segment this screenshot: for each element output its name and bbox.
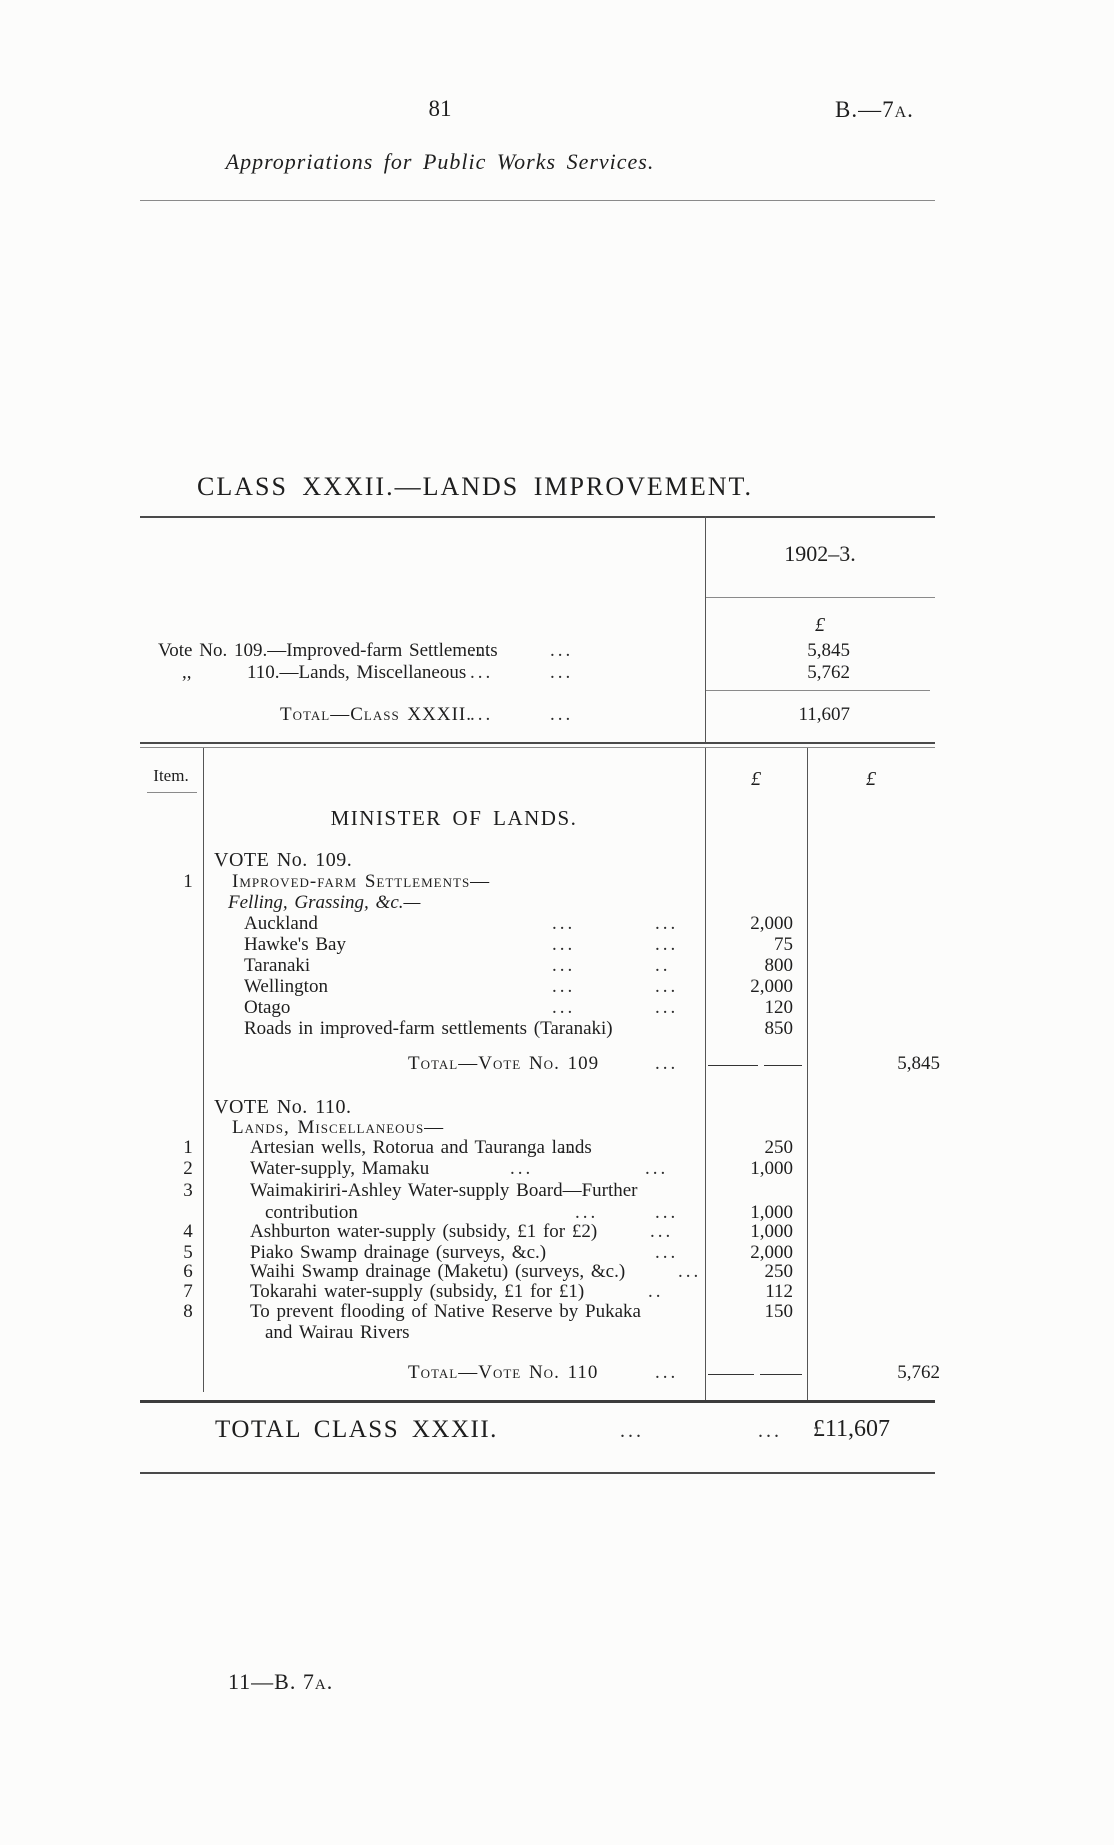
leader-dots: ...: [650, 1221, 673, 1243]
vote-total-row: Total—Vote No. 110 ... 5,762: [0, 1362, 1114, 1384]
group-heading-row: Lands, Miscellaneous—: [0, 1117, 1114, 1139]
total-dash-rule: [708, 1065, 758, 1066]
summary-amount: 5,845: [740, 640, 850, 662]
leader-dots: ...: [552, 934, 575, 956]
year-rule: [706, 597, 935, 598]
vote-total-amount: 5,845: [845, 1053, 940, 1075]
table-row: 3 Waimakiriri-Ashley Water-supply Board—…: [0, 1180, 1114, 1202]
group-heading: Lands, Miscellaneous—: [232, 1117, 444, 1139]
table-row: 2 Water-supply, Mamaku ... ... 1,000: [0, 1158, 1114, 1180]
leader-dots: ...: [655, 1053, 678, 1075]
item-amount: 2,000: [690, 976, 793, 998]
pound-sign-col1: £: [705, 768, 807, 791]
vote-heading: VOTE No. 109.: [214, 849, 352, 872]
pound-sign-col2: £: [807, 768, 935, 791]
item-amount: 2,000: [690, 913, 793, 935]
leader-dots: ...: [552, 913, 575, 935]
leader-dots: ..: [655, 955, 671, 977]
vote-heading: VOTE No. 110.: [214, 1096, 352, 1119]
summary-sum-rule: [706, 690, 930, 691]
leader-dots: ...: [552, 997, 575, 1019]
table-row: 4 Ashburton water-supply (subsidy, £1 fo…: [0, 1221, 1114, 1243]
total-dash-rule: [760, 1374, 802, 1375]
item-number: 3: [170, 1180, 206, 1202]
leader-dots: ...: [620, 1420, 644, 1443]
grand-total-label: TOTAL CLASS XXXII.: [215, 1416, 498, 1445]
grand-total-amount: £11,607: [760, 1416, 890, 1444]
table-row: Taranaki ... .. 800: [0, 955, 1114, 977]
class-heading: CLASS XXXII.—LANDS IMPROVEMENT.: [140, 472, 810, 502]
table-bottom-rule: [140, 1400, 935, 1403]
summary-row: ,, 110.—Lands, Miscellaneous ... ... 5,7…: [0, 662, 1114, 684]
summary-total-label: Total—Class XXXII.: [280, 704, 472, 726]
leader-dots: ...: [510, 1158, 533, 1180]
table-row: 7 Tokarahi water-supply (subsidy, £1 for…: [0, 1281, 1114, 1303]
leader-dots: ...: [655, 976, 678, 998]
leader-dots: ...: [655, 1362, 678, 1384]
leader-dots: ...: [550, 662, 573, 684]
vote-heading-row: VOTE No. 109.: [0, 849, 1114, 871]
table-row: Auckland ... ... 2,000: [0, 913, 1114, 935]
leader-dots: ..: [648, 1281, 664, 1303]
footer-ref: 11—B. 7a.: [228, 1669, 333, 1694]
item-number: 2: [170, 1158, 206, 1180]
page-bottom-rule: [140, 1472, 935, 1474]
leader-dots: ...: [655, 934, 678, 956]
summary-row: Vote No. 109.—Improved-farm Settlements …: [0, 640, 1114, 662]
minister-heading: MINISTER OF LANDS.: [203, 806, 705, 830]
item-label: Wellington: [244, 976, 328, 998]
item-number: 7: [170, 1281, 206, 1303]
item-amount: 150: [690, 1301, 793, 1323]
table-row: 8 To prevent flooding of Native Reserve …: [0, 1301, 1114, 1323]
leader-dots: ...: [655, 997, 678, 1019]
vote-total-label: Total—Vote No. 110: [408, 1362, 598, 1384]
item-number: 4: [170, 1221, 206, 1243]
item-label: To prevent flooding of Native Reserve by…: [250, 1301, 641, 1323]
leader-dots: ...: [550, 704, 573, 726]
leader-dots: ...: [550, 640, 573, 662]
item-number: 1: [170, 1137, 206, 1159]
table-row: 1 Artesian wells, Rotorua and Tauranga l…: [0, 1137, 1114, 1159]
leader-dots: ...: [560, 1137, 583, 1159]
table-row: Roads in improved-farm settlements (Tara…: [0, 1018, 1114, 1040]
item-amount: 112: [690, 1281, 793, 1303]
subgroup-heading-row: Felling, Grassing, &c.—: [0, 892, 1114, 914]
table-row-continuation: and Wairau Rivers: [0, 1322, 1114, 1344]
running-title: Appropriations for Public Works Services…: [140, 149, 740, 174]
item-label: Waihi Swamp drainage (Maketu) (surveys, …: [250, 1261, 625, 1283]
item-amount: 800: [690, 955, 793, 977]
group-heading-row: 1 Improved-farm Settlements—: [0, 871, 1114, 893]
subgroup-heading: Felling, Grassing, &c.—: [228, 892, 420, 914]
summary-total-row: Total—Class XXXII. ... ... 11,607: [0, 704, 1114, 726]
title-rule: [140, 200, 935, 201]
table-row: Wellington ... ... 2,000: [0, 976, 1114, 998]
double-rule-top: [140, 742, 935, 744]
leader-dots: ...: [552, 955, 575, 977]
summary-top-rule: [140, 516, 935, 518]
table-row: Hawke's Bay ... ... 75: [0, 934, 1114, 956]
year-header: 1902–3.: [705, 541, 935, 566]
table-row: 6 Waihi Swamp drainage (Maketu) (surveys…: [0, 1261, 1114, 1283]
leader-dots: ...: [470, 662, 493, 684]
item-label: Hawke's Bay: [244, 934, 346, 956]
item-label-continuation: and Wairau Rivers: [265, 1322, 410, 1344]
vote-total-amount: 5,762: [845, 1362, 940, 1384]
item-header: Item.: [140, 766, 202, 786]
vote-heading-row: VOTE No. 110.: [0, 1096, 1114, 1118]
double-rule-bottom: [140, 747, 935, 748]
summary-amount: 5,762: [740, 662, 850, 684]
item-label: Ashburton water-supply (subsidy, £1 for …: [250, 1221, 597, 1243]
item-amount: 1,000: [690, 1221, 793, 1243]
pound-sign: £: [705, 614, 935, 637]
summary-row-label: Vote No. 109.—Improved-farm Settlements: [158, 640, 498, 662]
item-number: 6: [170, 1261, 206, 1283]
summary-row-label: 110.—Lands, Miscellaneous: [247, 662, 466, 684]
vote-total-row: Total—Vote No. 109 ... 5,845: [0, 1053, 1114, 1075]
item-number: 8: [170, 1301, 206, 1323]
item-amount: 1,000: [690, 1158, 793, 1180]
doc-ref: B.—7a.: [835, 97, 914, 123]
total-dash-rule: [708, 1374, 754, 1375]
item-amount: 250: [690, 1261, 793, 1283]
document-page: 81 B.—7a. Appropriations for Public Work…: [0, 0, 1114, 1845]
leader-dots: ...: [470, 640, 493, 662]
leader-dots: ...: [645, 1158, 668, 1180]
item-amount: 120: [690, 997, 793, 1019]
group-heading: Improved-farm Settlements—: [232, 871, 490, 893]
item-label: Roads in improved-farm settlements (Tara…: [244, 1018, 613, 1040]
item-number: 1: [170, 871, 206, 893]
item-label: Waimakiriri-Ashley Water-supply Board—Fu…: [250, 1180, 638, 1202]
item-amount: 75: [690, 934, 793, 956]
item-label: Tokarahi water-supply (subsidy, £1 for £…: [250, 1281, 584, 1303]
item-header-rule: [147, 792, 197, 793]
leader-dots: ...: [470, 704, 493, 726]
item-label: Auckland: [244, 913, 318, 935]
item-label: Taranaki: [244, 955, 310, 977]
item-label: Otago: [244, 997, 290, 1019]
ditto-mark: ,,: [182, 662, 192, 684]
leader-dots: ...: [552, 976, 575, 998]
vote-total-label: Total—Vote No. 109: [408, 1053, 599, 1075]
total-dash-rule: [764, 1065, 802, 1066]
item-amount: 250: [690, 1137, 793, 1159]
summary-total-amount: 11,607: [740, 704, 850, 726]
page-number: 81: [140, 96, 740, 122]
item-amount: 850: [690, 1018, 793, 1040]
leader-dots: ...: [655, 913, 678, 935]
table-row: Otago ... ... 120: [0, 997, 1114, 1019]
item-label: Artesian wells, Rotorua and Tauranga lan…: [250, 1137, 592, 1159]
item-label: Water-supply, Mamaku: [250, 1158, 429, 1180]
